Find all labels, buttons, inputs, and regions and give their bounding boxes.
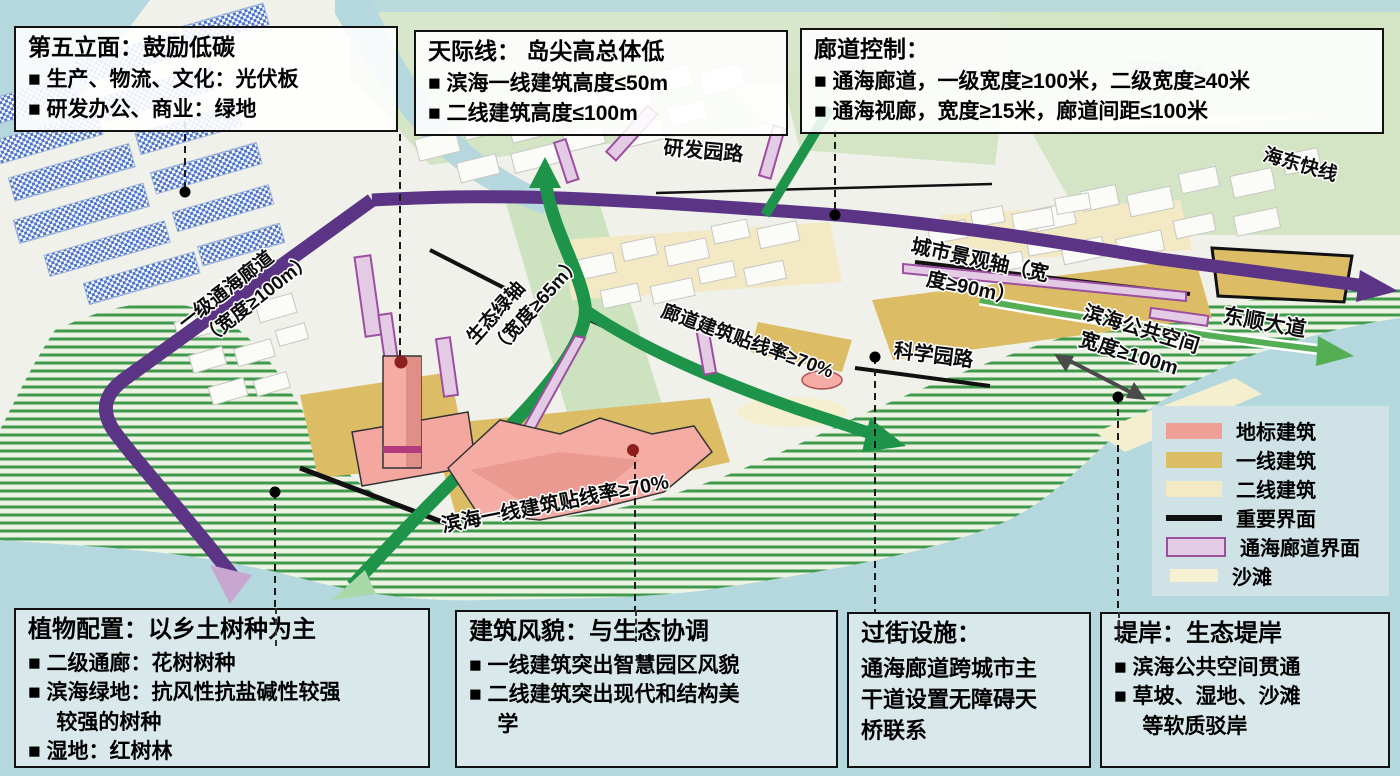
- leader-line-extension: [635, 610, 637, 642]
- legend-item-secondline: 二线建筑: [1166, 474, 1375, 503]
- callout-items: ■ 二级通廊：花树树种 ■ 滨海绿地：抗风性抗盐碱性较强 较强的树种 ■ 湿地：…: [28, 649, 416, 767]
- callout-architecture-style: 建筑风貌：与生态协调 ■ 一线建筑突出智慧园区风貌 ■ 二线建筑突出现代和结构美…: [455, 610, 838, 768]
- legend-swatch: [1170, 569, 1218, 582]
- callout-item: ■ 通海廊道，一级宽度≥100米，二级宽度≥40米: [814, 67, 1370, 96]
- callout-item: ■ 二级通廊：花树树种: [28, 649, 416, 678]
- legend-label: 沙滩: [1232, 561, 1272, 590]
- callout-items: ■ 通海廊道，一级宽度≥100米，二级宽度≥40米 ■ 通海视廊，宽度≥15米，…: [814, 67, 1370, 126]
- callout-skyline: 天际线： 岛尖高总体低 ■ 滨海一线建筑高度≤50m ■ 二线建筑高度≤100m: [414, 30, 788, 136]
- legend-label: 一线建筑: [1236, 445, 1316, 474]
- callout-items: ■ 一线建筑突出智慧园区风貌 ■ 二线建筑突出现代和结构美 学: [469, 651, 824, 739]
- legend-label: 二线建筑: [1236, 474, 1316, 503]
- legend-label: 通海廊道界面: [1240, 532, 1360, 561]
- callout-body: 通海廊道跨城市主 干道设置无障碍天 桥联系: [861, 653, 1077, 747]
- legend-item-beach: 沙滩: [1166, 561, 1375, 590]
- leader-line-extension: [275, 608, 277, 646]
- callout-crossing: 过街设施： 通海廊道跨城市主 干道设置无障碍天 桥联系: [847, 612, 1091, 768]
- callout-fifth-facade: 第五立面：鼓励低碳 ■ 生产、物流、文化：光伏板 ■ 研发办公、商业：绿地: [14, 26, 398, 132]
- legend-swatch: [1166, 423, 1222, 439]
- callout-item: ■ 研发办公、商业：绿地: [28, 95, 384, 124]
- legend-item-interface: 重要界面: [1166, 503, 1375, 532]
- callout-item: ■ 二线建筑高度≤100m: [428, 99, 774, 128]
- legend-label: 重要界面: [1236, 503, 1316, 532]
- callout-items: ■ 滨海公共空间贯通 ■ 草坡、湿地、沙滩 等软质驳岸: [1114, 653, 1376, 741]
- callout-embankment: 堤岸：生态堤岸 ■ 滨海公共空间贯通 ■ 草坡、湿地、沙滩 等软质驳岸: [1100, 612, 1390, 768]
- callout-item: ■ 湿地：红树林: [28, 737, 416, 766]
- legend-swatch: [1166, 452, 1222, 468]
- legend-swatch: [1166, 515, 1222, 521]
- planning-diagram-canvas: 调顺快线 一级通海廊道 （宽度≥100m） 生态绿轴 （宽度≥65m） 廊道建筑…: [0, 0, 1400, 776]
- callout-title: 建筑风貌：与生态协调: [469, 617, 824, 648]
- callout-title: 过街设施：: [861, 619, 1077, 650]
- callout-title: 第五立面：鼓励低碳: [28, 33, 384, 62]
- legend-swatch: [1166, 537, 1226, 557]
- callout-items: ■ 滨海一线建筑高度≤50m ■ 二线建筑高度≤100m: [428, 69, 774, 128]
- legend-label: 地标建筑: [1236, 416, 1316, 445]
- callout-title: 堤岸：生态堤岸: [1114, 619, 1376, 650]
- callout-item: ■ 二线建筑突出现代和结构美 学: [469, 680, 824, 739]
- map-legend: 地标建筑 一线建筑 二线建筑 重要界面 通海廊道界面 沙滩: [1152, 406, 1389, 596]
- callout-corridor-control: 廊道控制： ■ 通海廊道，一级宽度≥100米，二级宽度≥40米 ■ 通海视廊，宽…: [800, 28, 1384, 134]
- legend-item-landmark: 地标建筑: [1166, 416, 1375, 445]
- callout-item: ■ 滨海公共空间贯通: [1114, 653, 1376, 682]
- callout-item: ■ 通海视廊，宽度≥15米，廊道间距≤100米: [814, 97, 1370, 126]
- callout-item: ■ 生产、物流、文化：光伏板: [28, 65, 384, 94]
- callout-item: ■ 滨海一线建筑高度≤50m: [428, 69, 774, 98]
- leader-line-extension: [1118, 612, 1120, 642]
- callout-planting: 植物配置：以乡土树种为主 ■ 二级通廊：花树树种 ■ 滨海绿地：抗风性抗盐碱性较…: [14, 608, 430, 768]
- callout-title: 植物配置：以乡土树种为主: [28, 615, 416, 646]
- legend-item-corridor-interface: 通海廊道界面: [1166, 532, 1375, 561]
- legend-swatch: [1166, 481, 1222, 497]
- callout-item: ■ 一线建筑突出智慧园区风貌: [469, 651, 824, 680]
- callout-item: ■ 草坡、湿地、沙滩 等软质驳岸: [1114, 682, 1376, 741]
- callout-item: ■ 滨海绿地：抗风性抗盐碱性较强 较强的树种: [28, 678, 416, 737]
- legend-item-firstline: 一线建筑: [1166, 445, 1375, 474]
- callout-title: 廊道控制：: [814, 35, 1370, 64]
- callout-items: ■ 生产、物流、文化：光伏板 ■ 研发办公、商业：绿地: [28, 65, 384, 124]
- callout-title: 天际线： 岛尖高总体低: [428, 37, 774, 66]
